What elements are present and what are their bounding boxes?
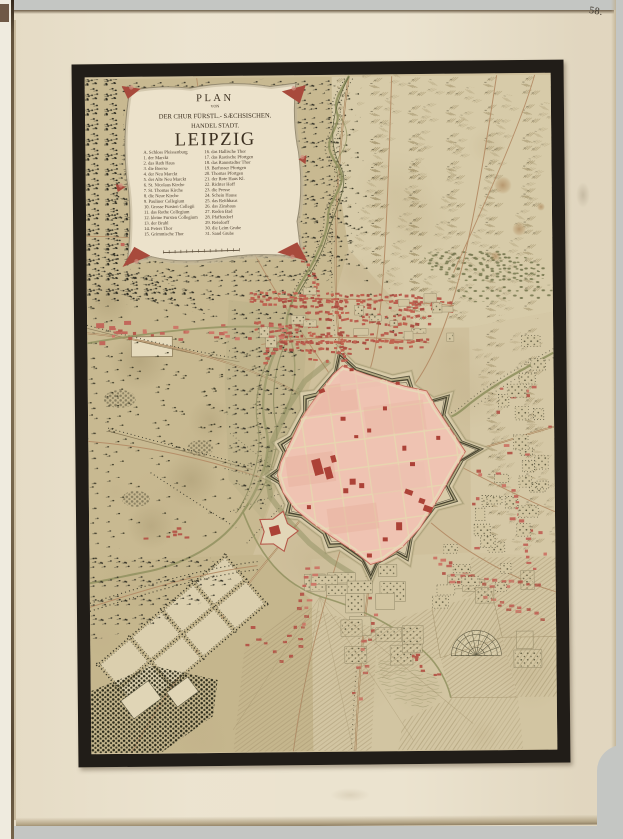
- svg-text:24. Schein Hause: 24. Schein Hause: [205, 192, 237, 197]
- svg-text:30. die Leim Grube: 30. die Leim Grube: [205, 225, 241, 230]
- svg-text:27. Roden Bad: 27. Roden Bad: [205, 209, 233, 214]
- svg-text:14. Peters Thor: 14. Peters Thor: [144, 226, 173, 231]
- svg-text:LEIPZIG: LEIPZIG: [175, 130, 256, 151]
- svg-text:31. Sand Grube: 31. Sand Grube: [205, 231, 234, 236]
- svg-text:3. die Boerse: 3. die Boerse: [144, 166, 168, 171]
- svg-text:A. Schloss Pleissenburg: A. Schloss Pleissenburg: [143, 149, 188, 154]
- svg-text:DER CHUR FÜRSTL.- SÆCHSISCHEN.: DER CHUR FÜRSTL.- SÆCHSISCHEN.: [159, 112, 272, 120]
- svg-text:12. kleine Fursten Collegium: 12. kleine Fursten Collegium: [144, 215, 198, 221]
- svg-text:PLAN: PLAN: [196, 93, 234, 104]
- svg-text:21. der Rote Haus Kl.: 21. der Rote Haus Kl.: [205, 176, 245, 181]
- svg-text:VON: VON: [211, 103, 220, 108]
- svg-text:15. Grimmische Thor: 15. Grimmische Thor: [144, 231, 184, 236]
- svg-text:28. Pfaffendorf: 28. Pfaffendorf: [205, 214, 233, 219]
- svg-text:HANDEL STADT.: HANDEL STADT.: [191, 122, 240, 129]
- svg-text:22. Richter Hoff: 22. Richter Hoff: [205, 182, 236, 187]
- svg-text:2. das Rath Haus: 2. das Rath Haus: [143, 160, 174, 165]
